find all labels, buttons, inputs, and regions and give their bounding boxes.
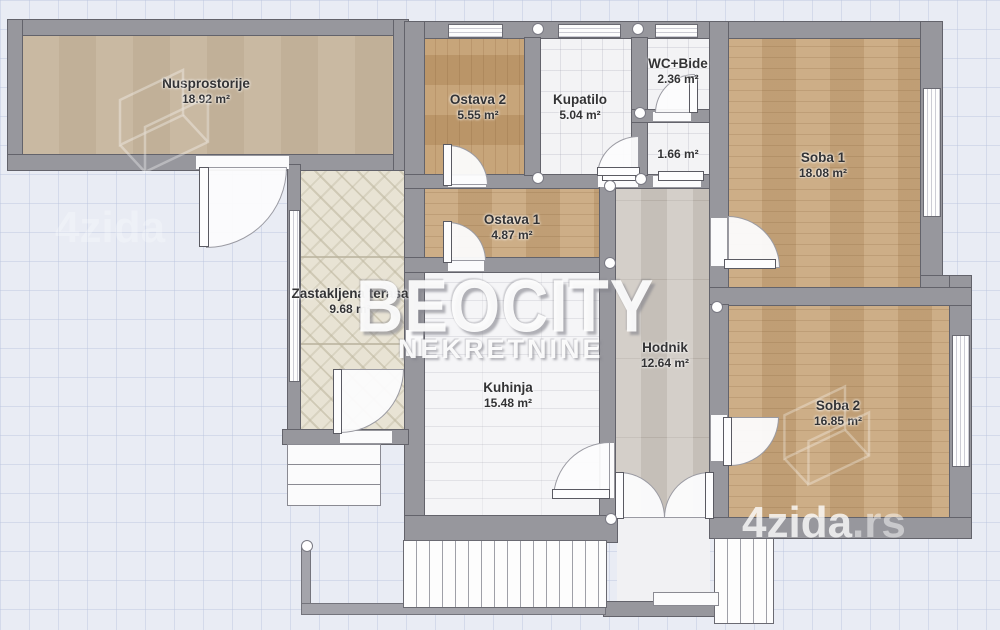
room-label-wc-bide: WC+Bide 2.36 m² [593, 56, 763, 87]
wall [710, 288, 971, 305]
room-label-kuhinja: Kuhinja 15.48 m² [423, 380, 593, 411]
staircase [714, 538, 774, 624]
door-leaf [597, 167, 640, 176]
window [923, 88, 941, 217]
wall-joint [532, 172, 544, 184]
wall-joint [635, 173, 647, 185]
entrance-landing [617, 516, 710, 602]
portal-watermark-faint: 4zida [55, 203, 165, 253]
wall-joint [632, 23, 644, 35]
window [558, 24, 621, 38]
wall [8, 20, 22, 170]
wall [8, 20, 408, 35]
wall [405, 516, 617, 542]
step [287, 484, 381, 506]
window [952, 335, 970, 467]
window [448, 24, 503, 38]
room-label-kupatilo: Kupatilo 5.04 m² [495, 92, 665, 123]
door-leaf [723, 417, 732, 466]
door-leaf [615, 472, 624, 519]
door-leaf [724, 259, 776, 269]
floor-plan: Nusprostorije 18.92 m² Ostava 2 5.55 m² … [0, 0, 1000, 630]
door-leaf [333, 369, 342, 434]
portal-logo-watermark-icon [105, 55, 235, 185]
staircase [403, 540, 607, 608]
sliding-door [658, 171, 704, 181]
wall-joint [604, 180, 616, 192]
wall-joint [605, 513, 617, 525]
wall-joint [301, 540, 313, 552]
room-label-ostava1: Ostava 1 4.87 m² [427, 212, 597, 243]
room-label-soba1: Soba 1 18.08 m² [738, 150, 908, 181]
step [287, 444, 381, 466]
portal-logo-watermark-icon [770, 362, 895, 507]
step [287, 464, 381, 486]
window [655, 24, 698, 38]
step [653, 592, 719, 606]
agency-watermark-sub: NEKRETNINE [398, 334, 604, 365]
wall-joint [711, 301, 723, 313]
wall-joint [532, 23, 544, 35]
door-leaf [443, 144, 452, 186]
railing [302, 548, 310, 608]
portal-watermark: 4zida.rs [742, 498, 906, 548]
door-opening [340, 431, 392, 443]
door-leaf [552, 489, 610, 499]
door-leaf [705, 472, 714, 519]
